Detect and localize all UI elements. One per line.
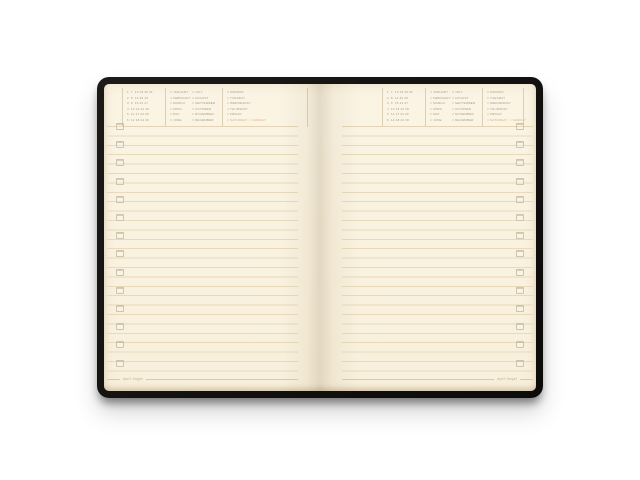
margin-checkbox [516,250,524,257]
weekdays-checklist: □ MONDAY□ TUESDAY□ WEDNESDAY□ THURSDAY□ … [487,88,527,127]
margin-checkbox [116,159,124,166]
header-divider [523,88,524,127]
margin-checkbox [516,123,524,130]
footer-label: don't forget [497,377,517,381]
mini-calendar: 1 7 13 19 25 312 8 14 20 263 9 15 21 274… [127,88,161,127]
margin-checkbox [116,196,124,203]
margin-checkbox [516,269,524,276]
margin-checkbox [516,305,524,312]
weekend-checkbox-row: □ SATURDAY □ SUNDAY [227,118,267,124]
page-header: 1 7 13 19 25 312 8 14 20 263 9 15 21 274… [378,88,527,127]
margin-checkbox [116,123,124,130]
header-divider [482,88,483,127]
month-row: □ JUNE□ DECEMBER [430,118,478,124]
footer-line [146,379,298,380]
margin-checkbox [516,178,524,185]
page-footer: don't forget [107,376,298,382]
margin-checkbox [116,341,124,348]
margin-checkbox [516,214,524,221]
margin-checkbox [116,305,124,312]
month-checkbox-item: □ DECEMBER [452,118,478,124]
date-grid-row: 6 12 18 24 30 [127,118,161,124]
margin-checkbox [516,196,524,203]
month-checkbox-item: □ JUNE [170,118,192,124]
weekdays-checklist: □ MONDAY□ TUESDAY□ WEDNESDAY□ THURSDAY□ … [227,88,267,127]
month-row: □ JUNE□ DECEMBER [170,118,218,124]
header-divider [165,88,166,127]
margin-checkbox [516,323,524,330]
footer-line [520,379,533,380]
footer-line [342,379,494,380]
month-checkbox-item: □ JUNE [430,118,452,124]
margin-checkbox [516,232,524,239]
ruled-lines [107,126,298,373]
margin-checkbox [516,360,524,367]
header-divider [382,88,383,127]
margin-checkbox [116,323,124,330]
page-left: 1 7 13 19 25 312 8 14 20 263 9 15 21 274… [104,84,320,391]
margin-checkbox [116,269,124,276]
footer-label: don't forget [123,377,143,381]
margin-checkbox [116,214,124,221]
margin-checkbox [116,250,124,257]
months-checklist: □ JANUARY□ JULY□ FEBRUARY□ AUGUST□ MARCH… [170,88,218,127]
footer-line [107,379,120,380]
margin-checkbox [116,178,124,185]
margin-checkbox [516,159,524,166]
header-divider [307,88,308,127]
month-checkbox-item: □ DECEMBER [192,118,218,124]
date-grid-row: 6 12 18 24 30 [387,118,421,124]
margin-checkbox [116,232,124,239]
planner-book-cover: 1 7 13 19 25 312 8 14 20 263 9 15 21 274… [97,77,543,398]
page-header: 1 7 13 19 25 312 8 14 20 263 9 15 21 274… [118,88,267,127]
margin-checkbox [516,341,524,348]
margin-checkbox [116,360,124,367]
months-checklist: □ JANUARY□ JULY□ FEBRUARY□ AUGUST□ MARCH… [430,88,478,127]
ruled-lines [342,126,533,373]
margin-checkbox [116,287,124,294]
header-divider [425,88,426,127]
margin-checkbox [516,287,524,294]
page-footer: don't forget [342,376,533,382]
margin-checkbox [116,141,124,148]
header-divider [122,88,123,127]
page-right: 1 7 13 19 25 312 8 14 20 263 9 15 21 274… [320,84,536,391]
open-pages: 1 7 13 19 25 312 8 14 20 263 9 15 21 274… [104,84,536,391]
header-divider [222,88,223,127]
margin-checkbox [516,141,524,148]
mini-calendar: 1 7 13 19 25 312 8 14 20 263 9 15 21 274… [387,88,421,127]
